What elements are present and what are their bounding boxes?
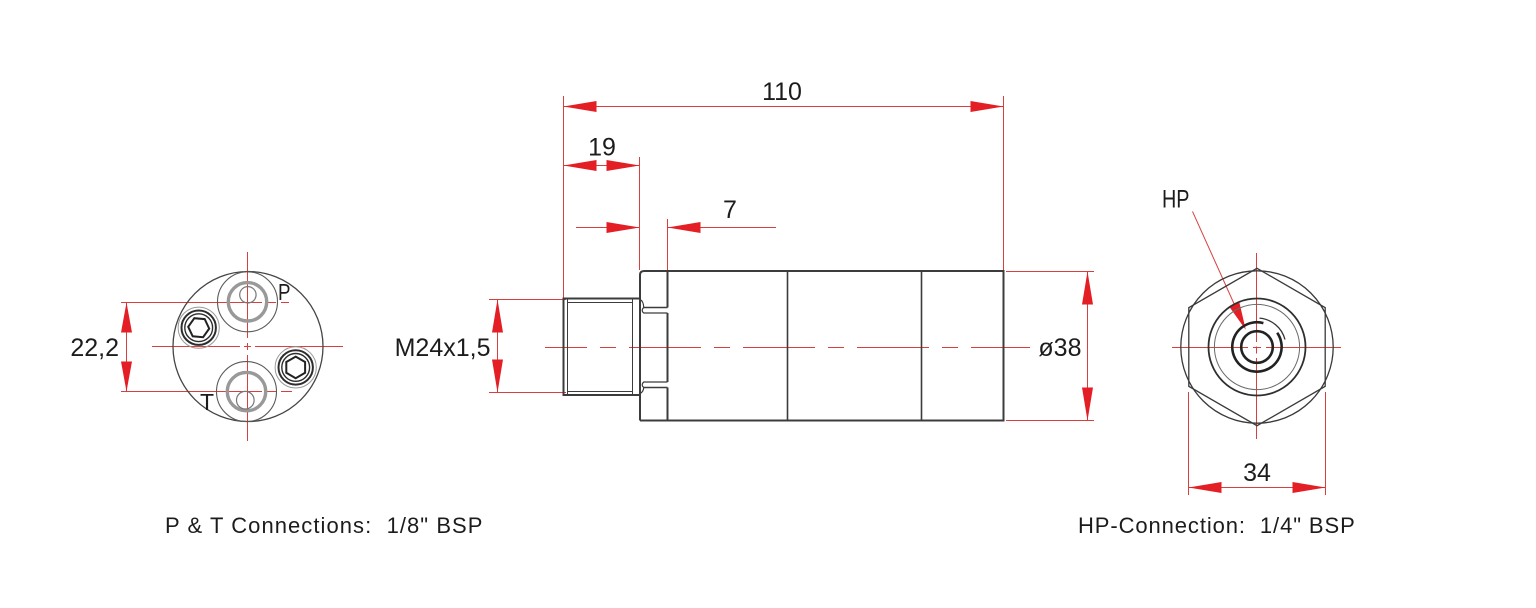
svg-text:22,2: 22,2 [70,334,119,362]
svg-text:P & T Connections: 1/8" BSP: P & T Connections: 1/8" BSP [165,513,484,538]
svg-text:HP-Connection: 1/4" BSP: HP-Connection: 1/4" BSP [1078,513,1356,538]
svg-text:34: 34 [1243,459,1271,487]
svg-text:110: 110 [762,78,802,106]
svg-text:ø38: ø38 [1038,334,1081,362]
svg-text:T: T [200,389,214,415]
svg-text:P: P [278,279,291,305]
svg-text:7: 7 [723,196,737,224]
svg-text:19: 19 [588,134,616,162]
svg-text:HP: HP [1162,186,1190,214]
svg-text:M24x1,5: M24x1,5 [395,334,491,362]
